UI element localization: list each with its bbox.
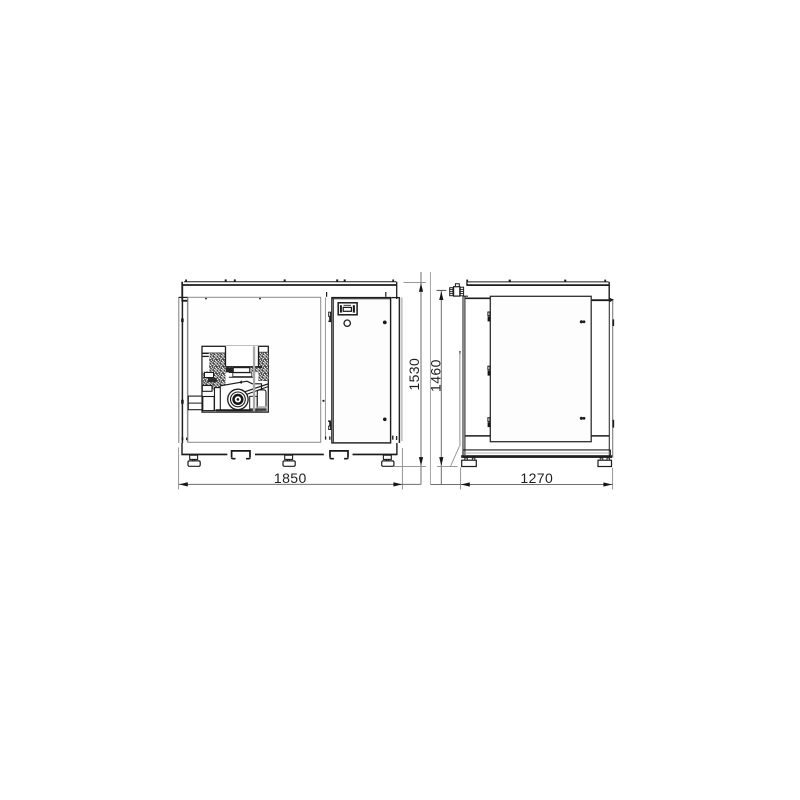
svg-text:1460: 1460 xyxy=(427,359,443,392)
svg-text:1530: 1530 xyxy=(406,358,422,391)
svg-text:1850: 1850 xyxy=(274,470,307,486)
svg-text:1270: 1270 xyxy=(520,470,553,486)
